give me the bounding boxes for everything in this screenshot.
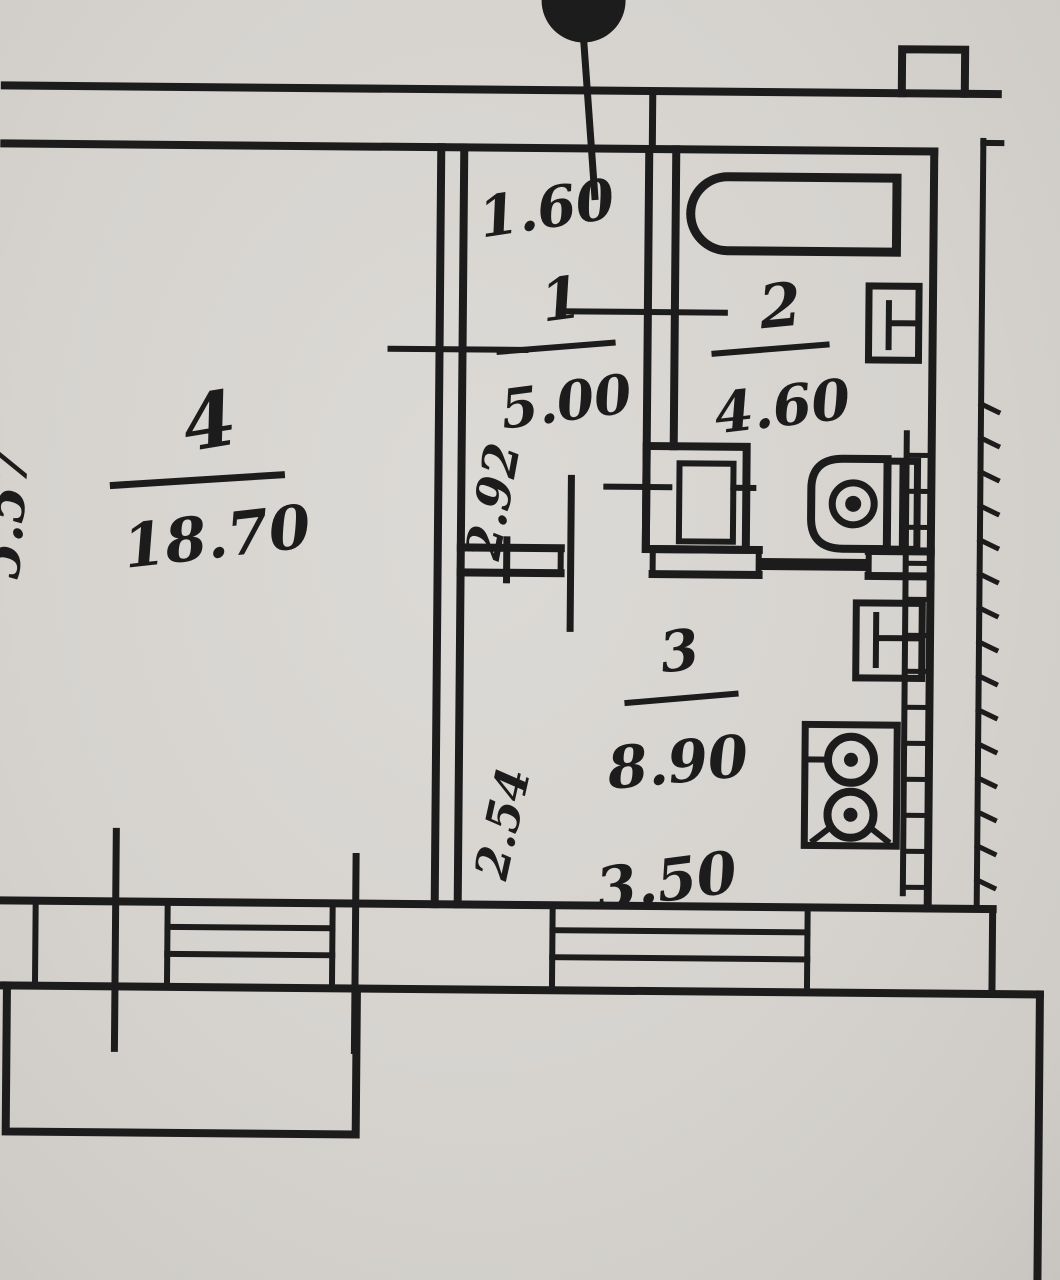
dimension-kitchen-width: 3.50 [592, 838, 741, 924]
room-1-number: 1 [537, 263, 586, 336]
wash-basin-tap-icon [889, 303, 913, 347]
wall-top-outer [5, 85, 998, 94]
floor-plan-drawing: 4 18.70 1 5.00 2 4.60 3 8.90 1.60 [0, 0, 1049, 1280]
room-2-area: 4.60 [711, 366, 854, 447]
vent-duct [646, 446, 754, 550]
door-threshold [759, 558, 869, 571]
window-living-room [167, 927, 332, 955]
floor-plan-canvas: 4 18.70 1 5.00 2 4.60 3 8.90 1.60 [0, 0, 1060, 1280]
toilet-bowl-center [845, 496, 861, 512]
room-3-label: 3 8.90 [603, 615, 753, 804]
wall-top-jamb [652, 91, 653, 149]
window-kitchen [552, 930, 807, 959]
dimension-labels: 1.60 3.50 5.57 2.92 2.54 [0, 160, 748, 925]
wall-bottom [0, 900, 1041, 1280]
room-3-number: 3 [656, 616, 703, 687]
stove-two-burner [804, 724, 897, 846]
room-4-label: 4 18.70 [112, 372, 316, 585]
kitchen-sink [856, 603, 923, 679]
window-jambs [35, 901, 808, 993]
room-2-label: 2 4.60 [710, 269, 855, 449]
wall-top-notch [902, 49, 965, 94]
dimension-kitchen-depth: 2.54 [464, 763, 541, 885]
wall-bottom-bottom-line [0, 985, 1040, 994]
room-1-area: 5.00 [497, 361, 636, 442]
axis-bottom-wall [354, 856, 356, 1050]
wall-bottom-right-jamb [992, 909, 993, 994]
kitchen-sink-tap-icon [876, 615, 916, 665]
wall-hall-bath-b [674, 149, 677, 446]
wall-top-inner [4, 143, 934, 151]
room-2-number: 2 [755, 270, 804, 344]
wall-room4-left-line [435, 147, 442, 904]
door-axis-kitchen [570, 478, 571, 628]
room-3-fraction-bar [627, 693, 735, 704]
room-3-area: 8.90 [603, 722, 751, 803]
room-4-area: 18.70 [120, 492, 315, 583]
wash-basin-bathroom [868, 286, 919, 360]
floor-plan-sheet: 4 18.70 1 5.00 2 4.60 3 8.90 1.60 [0, 0, 1060, 1280]
room-4-number: 4 [176, 373, 243, 470]
axis-tick-room1-right [559, 311, 725, 312]
toilet-tank-divider [902, 461, 903, 549]
balcony-outline [6, 985, 357, 1134]
bathtub [690, 176, 897, 252]
stove-burner-top-dot [844, 753, 858, 767]
room-1-label: 1 5.00 [496, 262, 637, 443]
dimension-left-height: 5.57 [0, 445, 42, 581]
dimension-top-width: 1.60 [474, 166, 619, 251]
door-axis-balcony [114, 831, 116, 1048]
stove-detail-ticks [804, 759, 888, 841]
wall-bottom-top-line [0, 900, 993, 909]
axis-tick-duct [606, 487, 669, 488]
room-4-fraction-bar [113, 473, 281, 486]
stove-burner-bottom-dot [843, 808, 857, 822]
wall-bottom-right-return [1037, 994, 1040, 1280]
wall-right-outer [977, 141, 984, 909]
vent-duct-inner [679, 463, 734, 541]
room-2-fraction-bar [715, 344, 827, 355]
toilet [811, 458, 918, 549]
